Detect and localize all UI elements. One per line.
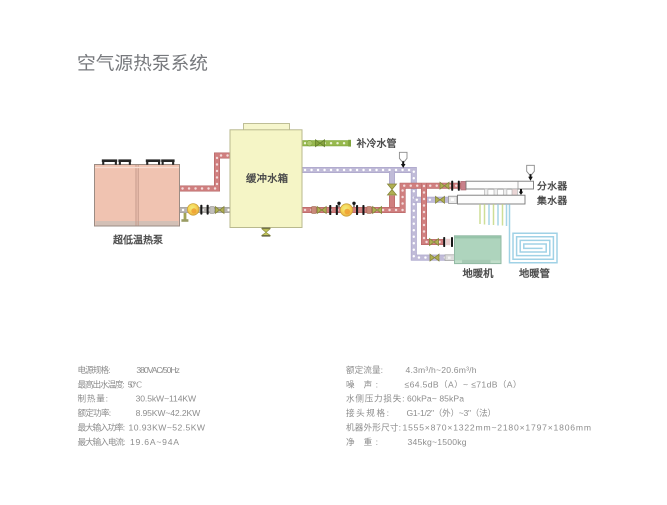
svg-text:G1-1/2"（外）~3"（法）: G1-1/2"（外）~3"（法） bbox=[407, 407, 497, 418]
svg-text:19.6A~94A: 19.6A~94A bbox=[130, 437, 179, 447]
svg-text:额定流量:: 额定流量: bbox=[346, 364, 383, 375]
svg-text:额定功率:: 额定功率: bbox=[78, 407, 112, 418]
svg-text:制热量:: 制热量: bbox=[78, 393, 109, 404]
svg-text:60kPa~ 85kPa: 60kPa~ 85kPa bbox=[407, 394, 464, 404]
svg-text:380VAC/50Hz: 380VAC/50Hz bbox=[136, 365, 180, 375]
svg-text:最高出水温度:: 最高出水温度: bbox=[78, 378, 125, 389]
svg-text:最大输入电流:: 最大输入电流: bbox=[78, 436, 126, 447]
svg-text:电源规格:: 电源规格: bbox=[78, 364, 111, 375]
svg-text:缓冲水箱: 缓冲水箱 bbox=[245, 172, 288, 185]
svg-text:分水器: 分水器 bbox=[537, 179, 568, 192]
svg-text:水侧压力损失:: 水侧压力损失: bbox=[346, 393, 405, 404]
svg-text:≤64.5dB（A）~ ≤71dB（A）: ≤64.5dB（A）~ ≤71dB（A） bbox=[405, 379, 522, 389]
svg-text:8.95KW~42.2KW: 8.95KW~42.2KW bbox=[136, 408, 201, 418]
svg-text:空气源热泵系统: 空气源热泵系统 bbox=[77, 54, 208, 74]
svg-text:1555×870×1322mm~2180×1797×1806: 1555×870×1322mm~2180×1797×1806mm bbox=[403, 423, 592, 433]
svg-text:30.5kW~114KW: 30.5kW~114KW bbox=[136, 394, 197, 404]
svg-text:超低温热泵: 超低温热泵 bbox=[112, 234, 164, 247]
svg-text:10.93KW~52.5KW: 10.93KW~52.5KW bbox=[129, 423, 206, 433]
svg-text:接头规格:: 接头规格: bbox=[346, 407, 389, 418]
svg-text:4.3m³/h~20.6m³/h: 4.3m³/h~20.6m³/h bbox=[406, 365, 477, 375]
svg-text:补冷水管: 补冷水管 bbox=[356, 137, 397, 150]
svg-text:345kg~1500kg: 345kg~1500kg bbox=[408, 437, 467, 447]
svg-text:地暖机: 地暖机 bbox=[463, 267, 495, 280]
svg-text:最大输入功率:: 最大输入功率: bbox=[78, 422, 126, 433]
svg-text:集水器: 集水器 bbox=[536, 194, 568, 207]
svg-text:地暖管: 地暖管 bbox=[519, 267, 550, 280]
svg-text:机器外形尺寸:: 机器外形尺寸: bbox=[346, 422, 401, 433]
svg-text:50℃: 50℃ bbox=[128, 379, 143, 389]
